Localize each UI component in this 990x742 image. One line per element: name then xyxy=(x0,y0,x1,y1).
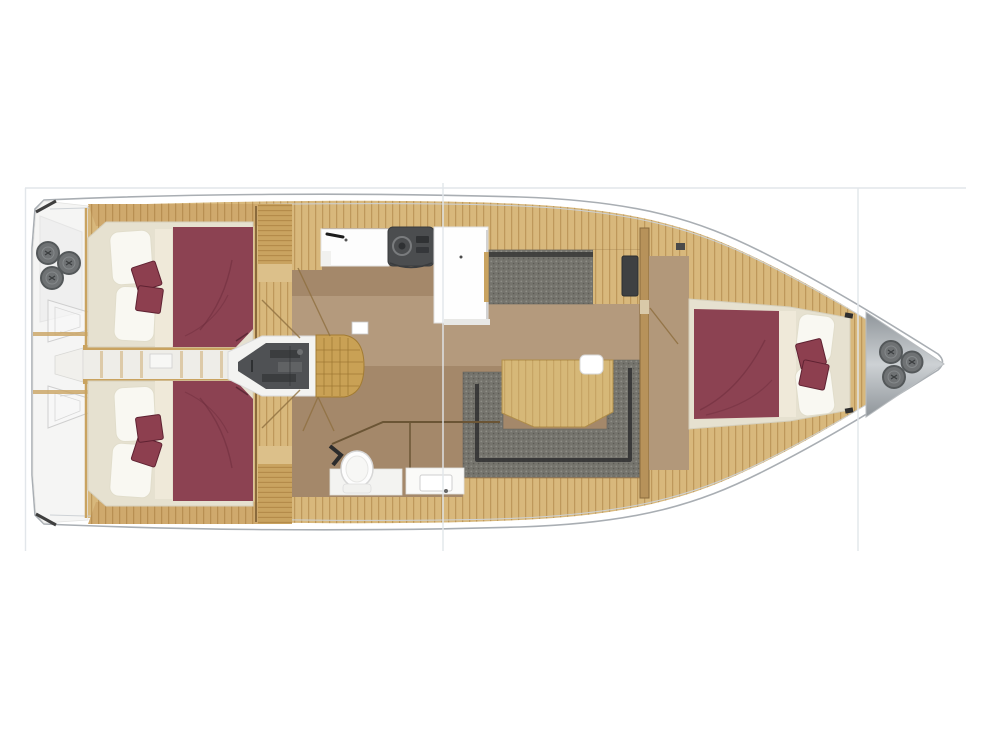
deck-wood-patch-texture xyxy=(292,226,322,270)
heads-sink xyxy=(420,475,452,491)
salon-locker xyxy=(622,256,638,296)
passage-hatch xyxy=(150,354,172,368)
deck-fitting-icon xyxy=(41,267,63,289)
page xyxy=(0,0,990,742)
heads-toilet xyxy=(341,451,373,493)
sink-drain-dot xyxy=(444,489,448,493)
berth-bedspread xyxy=(173,227,253,347)
deck-fitting-icon xyxy=(880,341,902,363)
forward-cabin-floor xyxy=(649,256,689,470)
salon-settee-forward xyxy=(489,250,593,304)
deck-fitting-icon xyxy=(37,242,59,264)
transom-sill-bottom xyxy=(33,390,88,394)
settee-back-rail xyxy=(489,252,593,257)
yacht-layout-image xyxy=(0,0,990,742)
mattress-divider xyxy=(779,311,796,417)
deck-hatch xyxy=(676,243,685,250)
throw-cushion xyxy=(799,360,830,391)
vberth-bedspread xyxy=(694,309,779,419)
throw-cushion xyxy=(135,285,163,313)
salon-stool xyxy=(580,355,603,374)
sink-drain xyxy=(345,239,348,242)
deck-fitting-icon xyxy=(902,352,923,373)
transom-sill-top xyxy=(33,332,88,336)
galley-stove xyxy=(388,227,434,268)
latch-dot xyxy=(460,256,463,259)
cabin-side-shelf xyxy=(258,264,292,282)
forward-bulkhead xyxy=(640,228,649,498)
counter-notch xyxy=(321,251,331,266)
cabin-side-locker-texture xyxy=(258,204,292,264)
center-passage xyxy=(55,345,255,384)
deck-fitting-icon xyxy=(883,366,905,388)
anchor-locker xyxy=(866,312,944,417)
steps-top-box xyxy=(352,322,368,334)
burner-center xyxy=(399,243,406,250)
bulkhead-doorway xyxy=(640,300,649,314)
